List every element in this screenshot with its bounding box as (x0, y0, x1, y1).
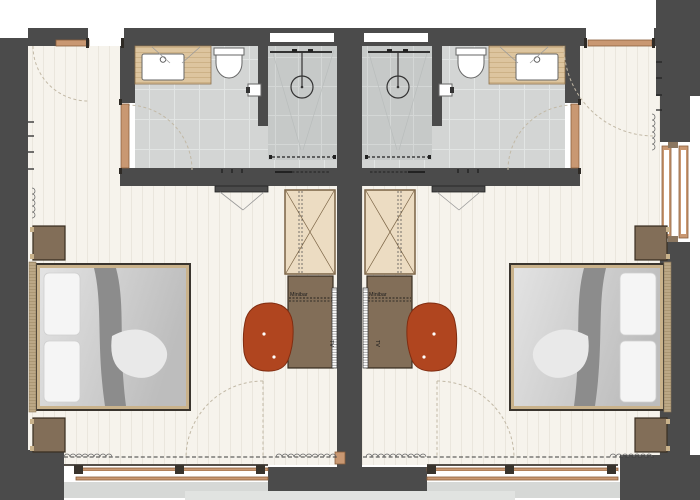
right-shower-drain-end-a (365, 155, 368, 159)
east-window-cap-bottom (668, 236, 678, 242)
left-window-glass (76, 471, 268, 477)
right-minibar-label: Minibar (369, 292, 387, 298)
southwest-corner (0, 450, 64, 500)
left-nightstand-top-body (33, 226, 65, 260)
left-bed (29, 262, 190, 412)
right-pillow-bottom (620, 341, 656, 402)
south-center-pier (268, 467, 427, 491)
left-window-post-1 (74, 465, 83, 474)
right-tv-label: TV (374, 340, 380, 347)
hotel-rooms-floor-plan: Minibar TV (0, 0, 700, 500)
right-armchair-shell (407, 303, 457, 371)
leg (666, 419, 670, 424)
leg (30, 419, 34, 424)
left-armchair-shell (243, 303, 293, 371)
right-nightstand-top (635, 226, 670, 260)
right-minibar-body (367, 276, 412, 368)
left-entry-jamb-a (86, 38, 89, 48)
right-entry-door-leaf (588, 40, 652, 46)
left-window-frame-outer (76, 468, 268, 471)
left-minibar-body (288, 276, 333, 368)
left-entry-jamb-b (121, 38, 124, 48)
left-bath-door-leaf (121, 104, 129, 168)
left-shower-valve-1 (292, 49, 297, 52)
left-bath-jamb-a (119, 99, 122, 105)
right-pillow-top (620, 273, 656, 335)
right-window-post-3 (607, 465, 616, 474)
right-armchair (407, 303, 457, 371)
left-minibar-label: Minibar (290, 292, 308, 298)
right-entry-jamb-b (652, 38, 655, 48)
leg (666, 446, 670, 451)
left-wardrobe (285, 190, 335, 274)
left-tv-label: TV (328, 340, 334, 347)
right-bath-door-leaf (571, 104, 579, 168)
left-armchair-button-1 (262, 332, 265, 335)
left-window-post-3 (256, 465, 265, 474)
east-window-cap-top (668, 142, 678, 148)
right-entry-jamb-a (584, 38, 587, 48)
partition-end-cap (335, 452, 345, 464)
right-tv-panel (363, 288, 368, 368)
right-window-post-1 (427, 465, 436, 474)
right-armchair-button-1 (432, 332, 435, 335)
left-nightstand-bottom (30, 418, 65, 452)
east-wall-upper (660, 96, 690, 142)
center-partition-wall (337, 28, 362, 468)
east-window-pane-a (664, 150, 669, 234)
left-toilet-tank (214, 48, 244, 55)
left-vanity (135, 46, 211, 84)
right-luggage-rack-bar (432, 186, 485, 192)
right-bath-jamb-b (578, 168, 581, 174)
right-window-sill-line (427, 464, 618, 466)
left-luggage-rack-bar (215, 186, 268, 192)
right-window-frame-inner (427, 477, 618, 480)
right-shower-head-dot (397, 86, 400, 89)
right-wardrobe (365, 190, 415, 274)
left-tp-holder (246, 84, 261, 96)
floor-plan-page: Minibar TV (0, 0, 700, 500)
right-shower-valve-2 (403, 49, 408, 52)
right-toilet-tank (456, 48, 486, 55)
left-entry-door-leaf (56, 40, 89, 46)
right-basin (516, 54, 558, 80)
right-vanity (489, 46, 565, 84)
left-tp-tab (246, 87, 250, 93)
right-shower-floor (362, 46, 432, 160)
left-shower-valve-2 (308, 49, 313, 52)
right-nightstand-bottom (635, 418, 670, 452)
left-window-post-2 (175, 465, 184, 474)
left-shower-drain-end-a (269, 155, 272, 159)
leg (30, 446, 34, 451)
right-minibar-unit: Minibar TV (363, 276, 412, 368)
left-tv-panel (332, 288, 337, 368)
left-minibar-unit: Minibar TV (288, 276, 337, 368)
right-shower-valve-1 (387, 49, 392, 52)
northeast-corner (656, 0, 700, 96)
southeast-corner (620, 455, 700, 500)
left-window-sill-line (64, 464, 268, 466)
left-pillow-top (44, 273, 80, 335)
right-nightstand-bottom-body (635, 418, 667, 452)
left-basin (142, 54, 184, 80)
left-bath-jamb-b (119, 168, 122, 174)
left-shower-niche (270, 33, 334, 42)
leg (30, 227, 34, 232)
left-nightstand-bottom-body (33, 418, 65, 452)
leg (666, 254, 670, 259)
left-pillow-bottom (44, 341, 80, 402)
right-shower-niche (364, 33, 428, 42)
east-window-pane-b (681, 150, 686, 234)
left-shower-drain-end-b (333, 155, 336, 159)
west-wall (0, 38, 28, 500)
right-window-frame-outer (427, 468, 618, 471)
left-shower-head-dot (301, 86, 304, 89)
leg (666, 227, 670, 232)
leg (30, 254, 34, 259)
right-shower-drain-end-b (428, 155, 431, 159)
right-tp-tab (450, 87, 454, 93)
left-armchair (243, 303, 293, 371)
left-headboard (29, 262, 36, 412)
right-bed (510, 262, 671, 412)
left-armchair-button-2 (272, 355, 275, 358)
right-headboard (664, 262, 671, 412)
right-bath-south-wall (362, 168, 580, 186)
right-window-glass (427, 471, 618, 477)
left-entry-opening (88, 28, 124, 46)
right-nightstand-top-body (635, 226, 667, 260)
left-bath-south-wall (120, 168, 337, 186)
right-tp-holder (439, 84, 454, 96)
right-armchair-button-2 (422, 355, 425, 358)
left-window-frame-inner (76, 477, 268, 480)
terrace-center-strip (185, 491, 515, 500)
right-bath-jamb-a (578, 99, 581, 105)
left-nightstand-top (30, 226, 65, 260)
right-window-post-2 (505, 465, 514, 474)
